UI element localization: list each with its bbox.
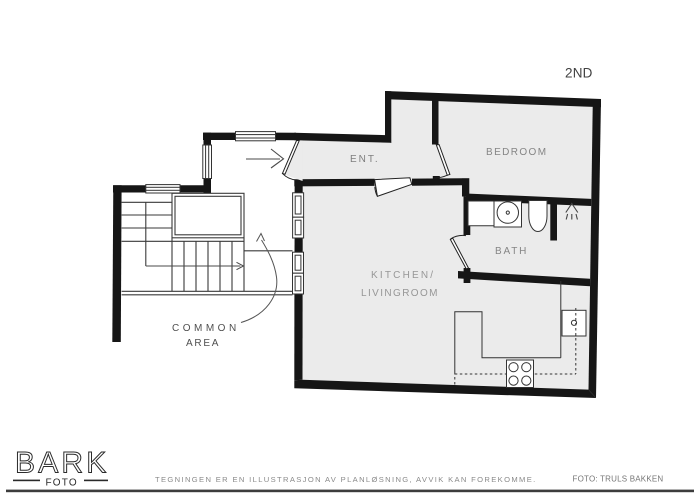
svg-text:BATH: BATH bbox=[495, 246, 528, 257]
svg-text:BARK: BARK bbox=[15, 447, 110, 480]
svg-text:KITCHEN/: KITCHEN/ bbox=[371, 270, 435, 281]
svg-text:COMMON: COMMON bbox=[172, 323, 240, 334]
svg-text:TEGNINGEN ER EN ILLUSTRASJON A: TEGNINGEN ER EN ILLUSTRASJON AV PLANLØSN… bbox=[155, 475, 537, 484]
svg-text:ENT.: ENT. bbox=[350, 154, 380, 165]
svg-text:FOTO: FOTO bbox=[46, 478, 78, 489]
svg-text:AREA: AREA bbox=[186, 338, 220, 349]
svg-text:FOTO: TRULS BAKKEN: FOTO: TRULS BAKKEN bbox=[573, 475, 664, 484]
svg-text:BEDROOM: BEDROOM bbox=[486, 147, 547, 158]
svg-text:LIVINGROOM: LIVINGROOM bbox=[361, 288, 439, 299]
svg-text:2ND: 2ND bbox=[565, 66, 593, 81]
